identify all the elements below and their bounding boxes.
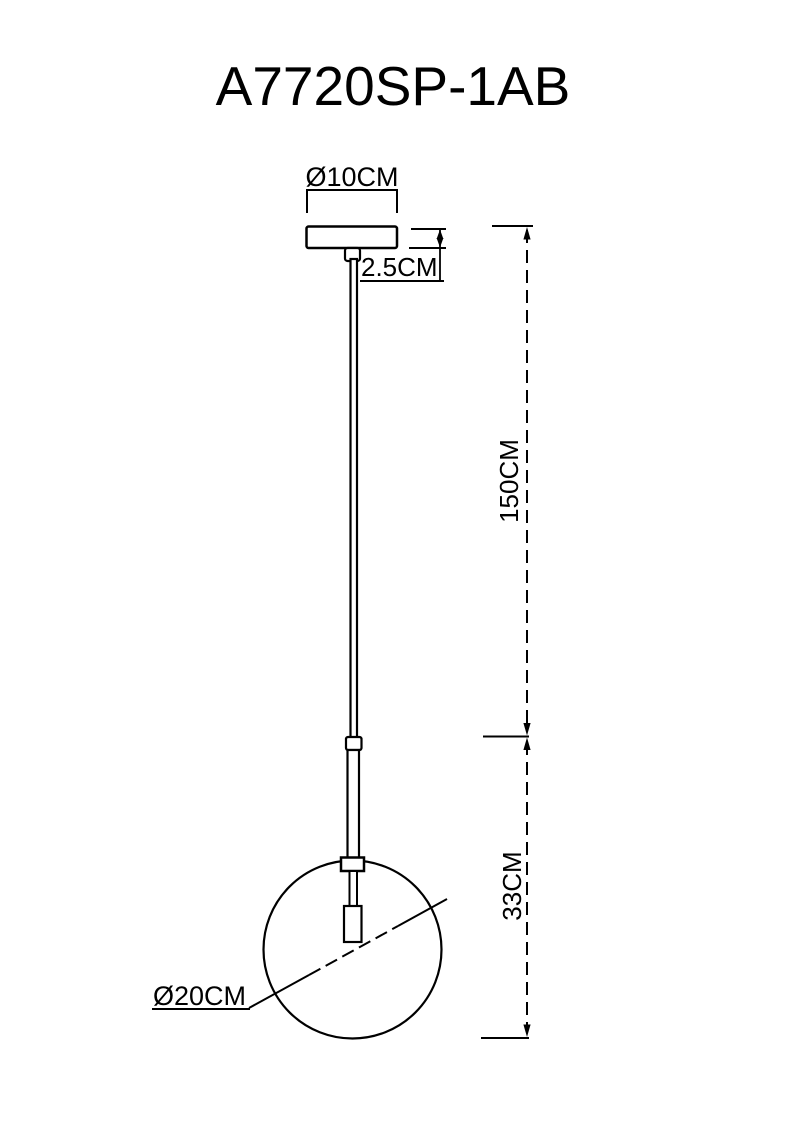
lower-tube <box>348 750 360 860</box>
lower-section-height-label: 33CM <box>498 826 528 946</box>
arrowhead-down-icon <box>437 238 444 248</box>
globe-mount-collar <box>341 858 364 872</box>
arrowhead-down-icon <box>523 723 530 736</box>
rod-length-label: 150CM <box>495 421 525 541</box>
inner-rod <box>350 871 358 906</box>
arrowhead-up-icon <box>437 230 444 240</box>
arrowhead-down-icon <box>523 1025 530 1038</box>
canopy-height-label: 2.5CM <box>361 253 438 282</box>
globe-diameter-label: Ø20CM <box>153 982 246 1012</box>
arrowhead-up-icon <box>523 227 530 240</box>
rod-collar <box>346 737 362 750</box>
suspension-rod <box>351 259 358 739</box>
canopy-diameter-label: Ø10CM <box>272 163 432 193</box>
arrowhead-up-icon <box>523 738 530 751</box>
ceiling-canopy <box>307 227 398 249</box>
bulb-socket <box>344 906 362 942</box>
drawing-page: A7720SP-1AB <box>0 0 794 1123</box>
